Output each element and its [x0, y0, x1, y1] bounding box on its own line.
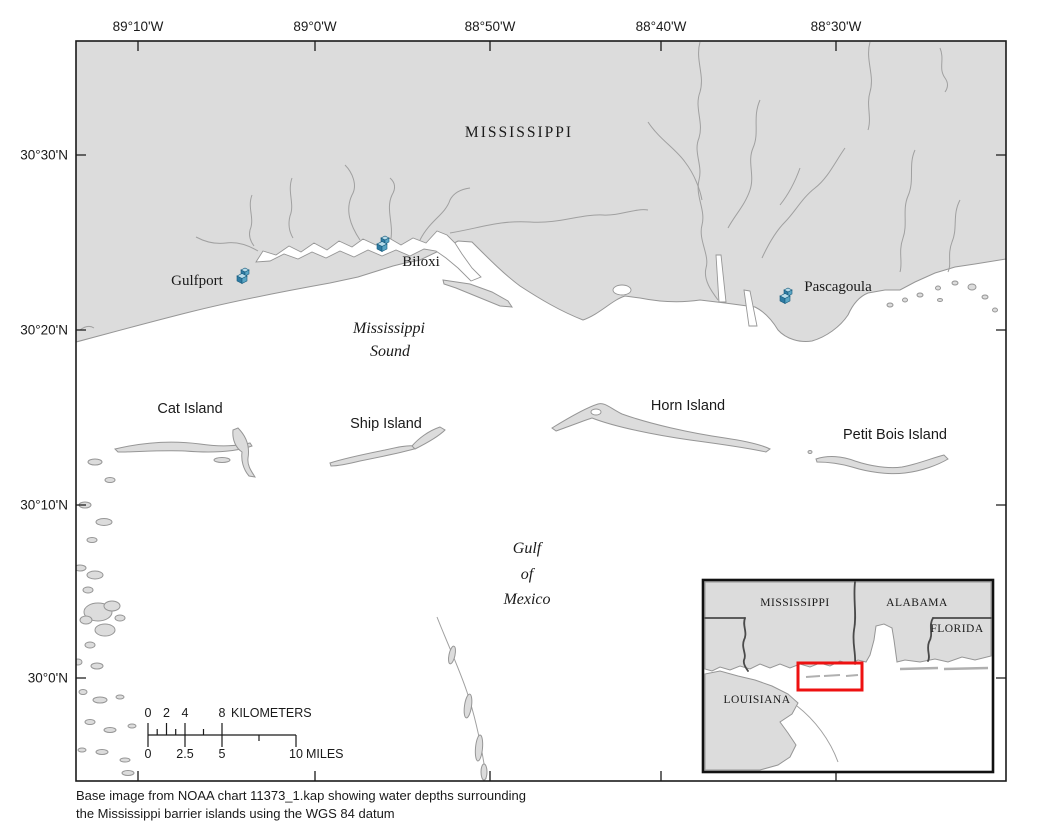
- city-label-pascagoula: Pascagoula: [804, 279, 872, 295]
- scale-km-unit: KILOMETERS: [231, 706, 312, 720]
- city-label-biloxi: Biloxi: [402, 254, 440, 270]
- lon-label: 89°0'W: [293, 19, 337, 34]
- marsh-islets: [74, 459, 136, 776]
- latitude-labels: 30°30'N 30°20'N 30°10'N 30°0'N: [20, 148, 68, 686]
- state-label-mississippi: MISSISSIPPI: [465, 124, 573, 141]
- lon-label: 89°10'W: [113, 19, 164, 34]
- lat-label: 30°30'N: [20, 148, 68, 163]
- inset-locator-map: MISSISSIPPI ALABAMA FLORIDA LOUISIANA: [703, 580, 993, 772]
- scale-bar: 0 2 4 8 KILOMETERS 0 2.5 5 10 MILES: [145, 706, 344, 761]
- gulf-label-line2: of: [521, 566, 536, 583]
- ship-island-west-shape: [330, 446, 414, 466]
- mainland-shape: [76, 40, 1006, 342]
- inset-label-louisiana: LOUISIANA: [723, 694, 790, 706]
- deer-island: [443, 280, 512, 307]
- inset-label-mississippi: MISSISSIPPI: [760, 597, 829, 609]
- lon-label: 88°40'W: [636, 19, 687, 34]
- sound-label-line2: Sound: [370, 343, 411, 360]
- lat-label: 30°0'N: [28, 671, 68, 686]
- lon-label: 88°50'W: [465, 19, 516, 34]
- scale-mi-0: 0: [145, 747, 152, 761]
- lon-label: 88°30'W: [811, 19, 862, 34]
- lat-label: 30°20'N: [20, 323, 68, 338]
- shoal-contour: [437, 617, 487, 780]
- scale-mi-2-5: 2.5: [176, 747, 193, 761]
- barrier-islands: [115, 404, 948, 477]
- scale-km-8: 8: [219, 706, 226, 720]
- island-label-cat: Cat Island: [157, 401, 222, 417]
- scale-km-4: 4: [182, 706, 189, 720]
- scale-mi-10: 10: [289, 747, 303, 761]
- caption-line1: Base image from NOAA chart 11373_1.kap s…: [76, 788, 526, 803]
- inset-label-alabama: ALABAMA: [886, 597, 948, 609]
- pond: [613, 285, 631, 295]
- island-label-horn: Horn Island: [651, 398, 725, 414]
- lat-label: 30°10'N: [20, 498, 68, 513]
- scale-km-0: 0: [145, 706, 152, 720]
- map-canvas: 89°10'W 89°0'W 88°50'W 88°40'W 88°30'W 3…: [0, 0, 1050, 832]
- cat-island-shape: [115, 442, 252, 452]
- caption-line2: the Mississippi barrier islands using th…: [76, 806, 395, 821]
- city-label-gulfport: Gulfport: [171, 273, 223, 289]
- gulf-label-line3: Mexico: [502, 591, 550, 608]
- longitude-labels: 89°10'W 89°0'W 88°50'W 88°40'W 88°30'W: [113, 19, 862, 34]
- scale-mi-unit: MILES: [306, 747, 344, 761]
- map-figure: 89°10'W 89°0'W 88°50'W 88°40'W 88°30'W 3…: [0, 0, 1050, 832]
- island-label-petit-bois: Petit Bois Island: [843, 427, 947, 443]
- sound-label-line1: Mississippi: [352, 320, 425, 337]
- petit-bois-island-shape: [816, 455, 948, 474]
- gulf-label-line1: Gulf: [513, 540, 544, 557]
- scale-mi-5: 5: [219, 747, 226, 761]
- island-label-ship: Ship Island: [350, 416, 422, 432]
- scale-km-2: 2: [163, 706, 170, 720]
- inset-fl-barrier-islands: [900, 668, 988, 669]
- inset-label-florida: FLORIDA: [930, 623, 984, 635]
